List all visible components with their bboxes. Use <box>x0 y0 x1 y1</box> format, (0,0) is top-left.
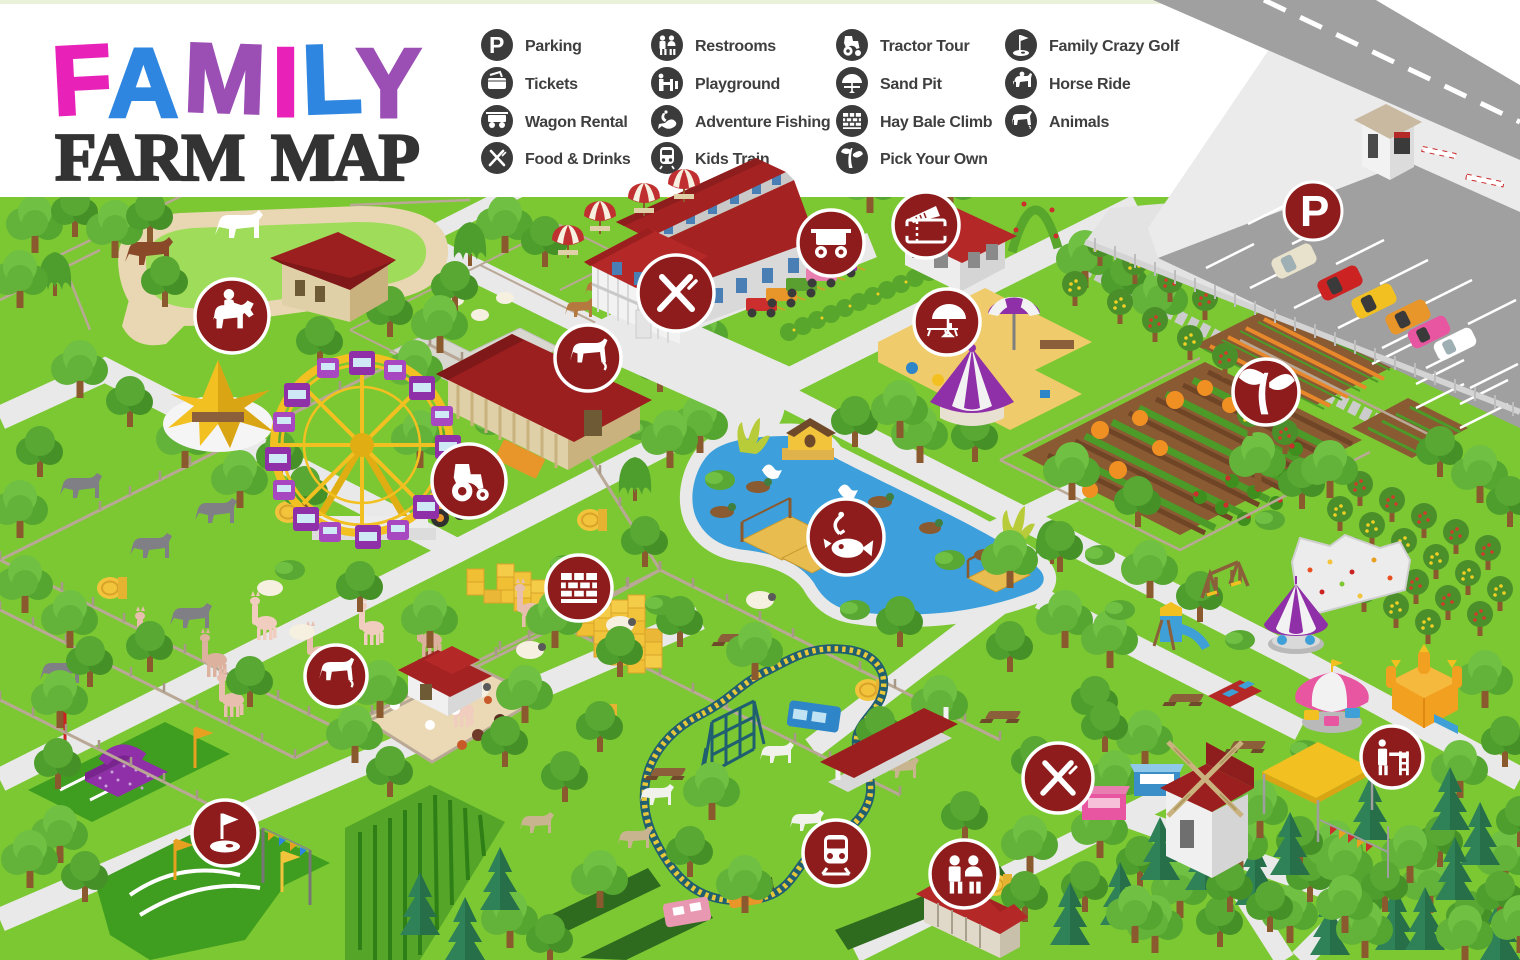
svg-text:Animals: Animals <box>1049 114 1110 131</box>
svg-text:Restrooms: Restrooms <box>695 38 776 55</box>
svg-text:Adventure Fishing: Adventure Fishing <box>695 114 830 131</box>
svg-text:M: M <box>182 22 267 135</box>
svg-text:Pick Your Own: Pick Your Own <box>880 151 988 168</box>
svg-text:Wagon Rental: Wagon Rental <box>525 114 627 131</box>
svg-text:FARM MAP: FARM MAP <box>55 119 420 195</box>
svg-text:P: P <box>1300 187 1329 236</box>
svg-text:Playground: Playground <box>695 76 780 93</box>
svg-text:Hay Bale Climb: Hay Bale Climb <box>880 114 993 131</box>
svg-text:Sand Pit: Sand Pit <box>880 76 943 93</box>
svg-text:Food & Drinks: Food & Drinks <box>525 151 631 168</box>
svg-text:Tractor Tour: Tractor Tour <box>880 38 970 55</box>
svg-text:Parking: Parking <box>525 38 582 55</box>
svg-text:Family Crazy Golf: Family Crazy Golf <box>1049 38 1180 55</box>
svg-text:Tickets: Tickets <box>525 76 578 93</box>
svg-text:Horse Ride: Horse Ride <box>1049 76 1131 93</box>
svg-text:P: P <box>489 32 504 58</box>
svg-text:L: L <box>300 23 364 135</box>
